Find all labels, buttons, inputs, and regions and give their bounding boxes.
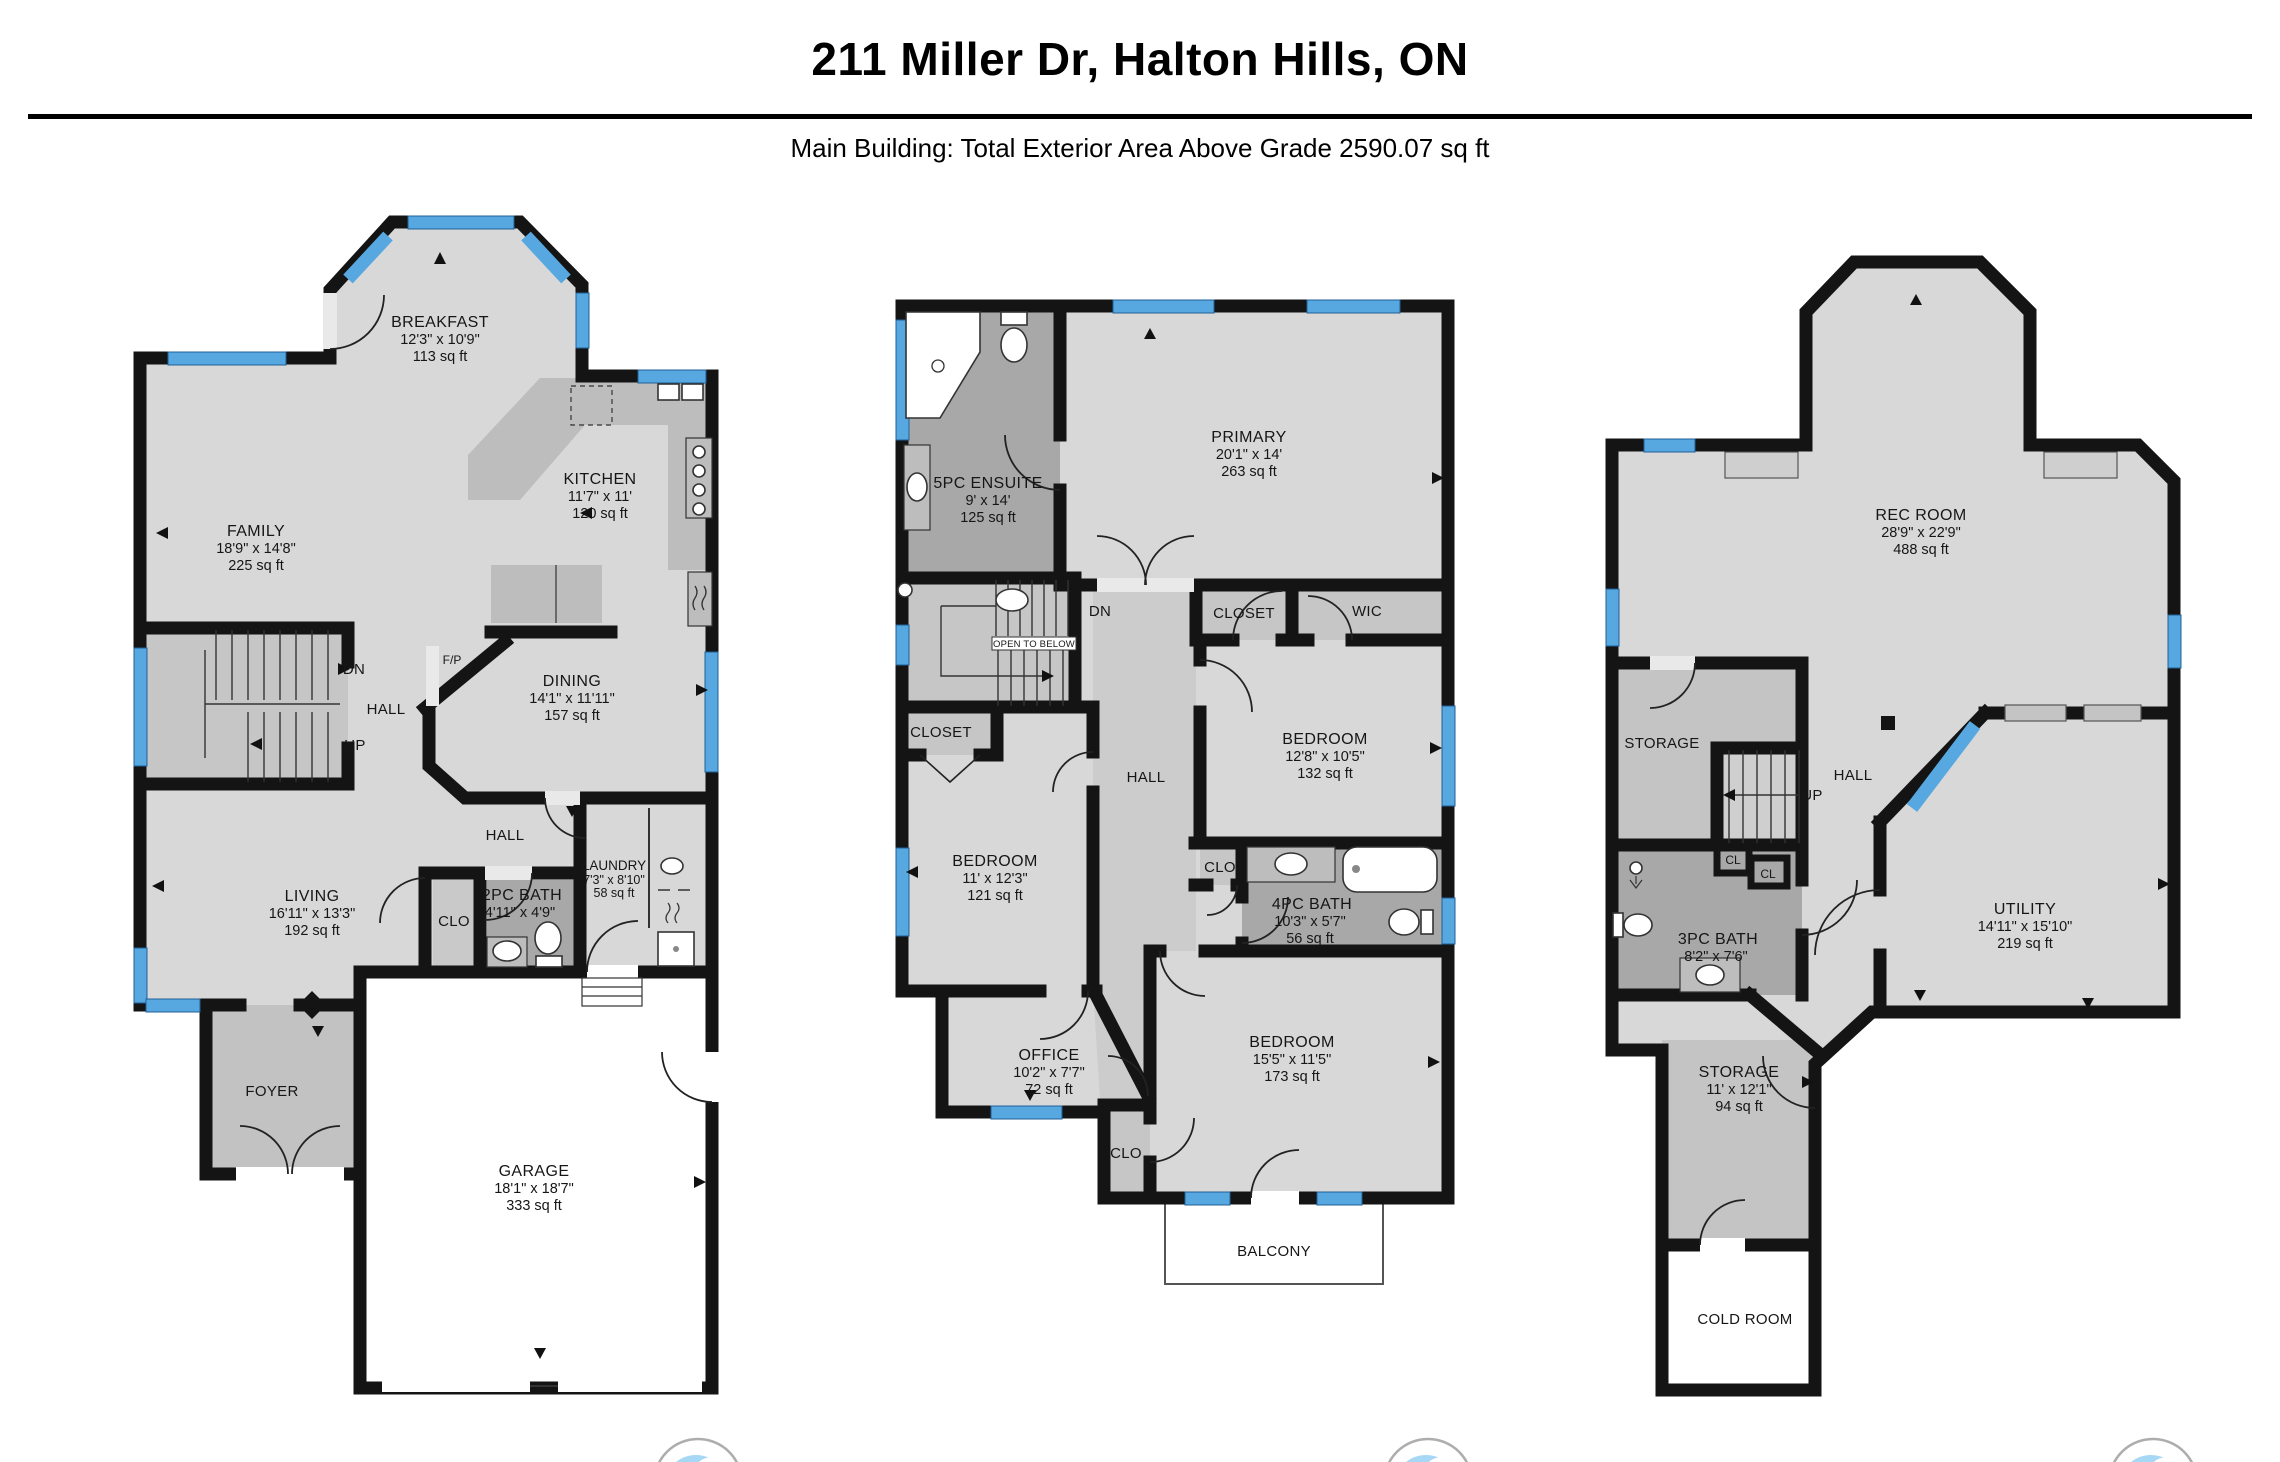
room-label: 173 sq ft	[1264, 1069, 1320, 1085]
room-label: GARAGE	[499, 1163, 570, 1180]
room-label: FOYER	[245, 1083, 298, 1100]
room-label: BEDROOM	[1282, 731, 1367, 748]
room-label: BEDROOM	[952, 853, 1037, 870]
room-label: REC ROOM	[1875, 507, 1966, 524]
room-label: DINING	[543, 673, 601, 690]
room-label: CL	[1760, 867, 1776, 881]
room-label: CLO	[438, 913, 470, 930]
room-label: 132 sq ft	[1297, 766, 1353, 782]
room-label: UP	[1801, 787, 1822, 804]
room-label: 157 sq ft	[544, 708, 600, 724]
room-label: HALL	[486, 827, 525, 844]
room-label: 2PC BATH	[482, 887, 562, 904]
room-label: F/P	[443, 653, 462, 667]
room-label: 225 sq ft	[228, 558, 284, 574]
room-label: 7'3" x 8'10"	[583, 873, 645, 887]
room-label: PRIMARY	[1211, 429, 1286, 446]
room-label: STORAGE	[1699, 1064, 1780, 1081]
room-label: 14'11" x 15'10"	[1978, 919, 2073, 935]
room-label: CLOSET	[1213, 605, 1275, 622]
floorplan-page: 211 Miller Dr, Halton Hills, ON Main Bui…	[0, 0, 2280, 1462]
room-label: KITCHEN	[563, 471, 636, 488]
basement-fills	[1612, 262, 2174, 1390]
room-label: BEDROOM	[1249, 1034, 1334, 1051]
compass-logo	[2109, 1439, 2197, 1462]
second-floor-fills	[902, 306, 1448, 1284]
room-label: 488 sq ft	[1893, 542, 1949, 558]
room-label: 14'1" x 11'11"	[529, 691, 614, 707]
room-label: 5PC ENSUITE	[933, 475, 1042, 492]
room-label: 8'2" x 7'6"	[1684, 949, 1747, 965]
room-label: FAMILY	[227, 523, 285, 540]
room-label: 10'3" x 5'7"	[1274, 914, 1345, 930]
floorplans-canvas: BREAKFAST 12'3" x 10'9" 113 sq ft FAMILY…	[0, 0, 2280, 1462]
room-label: STORAGE	[1624, 735, 1699, 752]
room-label: UTILITY	[1994, 901, 2056, 918]
room-label: 333 sq ft	[506, 1198, 562, 1214]
room-label: 56 sq ft	[1286, 931, 1334, 947]
room-label: HALL	[1127, 769, 1166, 786]
room-label: OFFICE	[1018, 1047, 1079, 1064]
room-label: 125 sq ft	[960, 510, 1016, 526]
room-label: 120 sq ft	[572, 506, 628, 522]
room-label: 94 sq ft	[1715, 1099, 1763, 1115]
room-label: 11' x 12'1"	[1706, 1082, 1771, 1098]
room-label: DN	[343, 661, 365, 678]
room-label: 58 sq ft	[594, 886, 636, 900]
room-label: 20'1" x 14'	[1216, 447, 1283, 463]
room-label: CLOSET	[910, 724, 972, 741]
room-label: LAUNDRY	[582, 858, 646, 873]
room-label: COLD ROOM	[1697, 1311, 1792, 1328]
room-label: 4PC BATH	[1272, 896, 1352, 913]
room-label: 192 sq ft	[284, 923, 340, 939]
floor-plan-basement: REC ROOM 28'9" x 22'9" 488 sq ft STORAGE…	[1606, 262, 2181, 1390]
room-label: CLO	[1204, 859, 1236, 876]
room-label: BALCONY	[1237, 1243, 1311, 1260]
room-label: OPEN TO BELOW	[993, 639, 1075, 650]
room-label: 28'9" x 22'9"	[1881, 525, 1961, 541]
compass-logo	[1384, 1439, 1472, 1462]
room-label: 11'7" x 11'	[568, 489, 632, 505]
room-label: 18'9" x 14'8"	[216, 541, 296, 557]
room-label: LIVING	[285, 888, 340, 905]
room-label: 4'11" x 4'9"	[485, 905, 555, 921]
room-label: 10'2" x 7'7"	[1013, 1065, 1084, 1081]
room-label: WIC	[1352, 603, 1382, 620]
compass-logo	[654, 1439, 742, 1462]
room-label: 12'8" x 10'5"	[1285, 749, 1365, 765]
room-label: 12'3" x 10'9"	[400, 332, 480, 348]
floor-plan-main: BREAKFAST 12'3" x 10'9" 113 sq ft FAMILY…	[134, 216, 719, 1392]
room-label: 113 sq ft	[413, 349, 468, 365]
room-label: 11' x 12'3"	[962, 871, 1027, 887]
room-label: 18'1" x 18'7"	[494, 1181, 574, 1197]
room-label: 3PC BATH	[1678, 931, 1758, 948]
room-label: CL	[1725, 853, 1741, 867]
room-label: 219 sq ft	[1997, 936, 2053, 952]
room-label: UP	[344, 737, 365, 754]
room-label: BREAKFAST	[391, 314, 489, 331]
room-label: 263 sq ft	[1221, 464, 1277, 480]
room-label: 15'5" x 11'5"	[1253, 1052, 1331, 1068]
floor-plan-second: 5PC ENSUITE 9' x 14' 125 sq ft PRIMARY 2…	[896, 300, 1455, 1284]
room-label: 16'11" x 13'3"	[269, 906, 356, 922]
room-label: 121 sq ft	[967, 888, 1023, 904]
room-label: HALL	[367, 701, 406, 718]
room-label: DN	[1089, 603, 1111, 620]
main-floor-fills	[140, 222, 712, 1388]
room-label: 9' x 14'	[965, 493, 1010, 509]
room-label: CLO	[1110, 1145, 1142, 1162]
room-label: HALL	[1834, 767, 1873, 784]
